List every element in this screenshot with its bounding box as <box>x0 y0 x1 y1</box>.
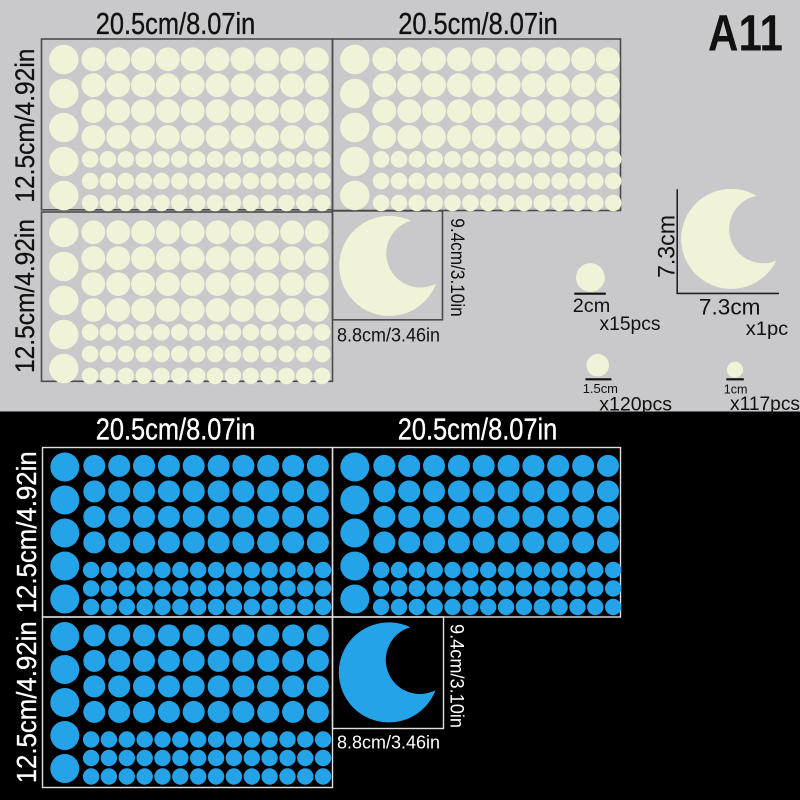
svg-text:20.5cm/8.07in: 20.5cm/8.07in <box>96 412 256 446</box>
svg-text:8.8cm/3.46in: 8.8cm/3.46in <box>337 732 440 753</box>
svg-text:7.3cm: 7.3cm <box>654 215 681 278</box>
svg-text:x120pcs: x120pcs <box>599 394 672 416</box>
svg-text:12.5cm/4.92in: 12.5cm/4.92in <box>11 621 42 783</box>
svg-text:9.4cm/3.10in: 9.4cm/3.10in <box>446 218 467 317</box>
svg-text:20.5cm/8.07in: 20.5cm/8.07in <box>398 412 558 446</box>
svg-text:x1pc: x1pc <box>746 318 789 340</box>
svg-text:12.5cm/4.92in: 12.5cm/4.92in <box>11 451 42 613</box>
svg-text:12.5cm/4.92in: 12.5cm/4.92in <box>10 49 40 203</box>
svg-text:7.3cm: 7.3cm <box>699 295 761 320</box>
svg-text:A11: A11 <box>708 5 783 62</box>
svg-text:x117pcs: x117pcs <box>730 393 800 415</box>
svg-text:20.5cm/8.07in: 20.5cm/8.07in <box>398 7 558 41</box>
svg-text:9.4cm/3.10in: 9.4cm/3.10in <box>446 624 467 728</box>
svg-text:20.5cm/8.07in: 20.5cm/8.07in <box>96 7 256 41</box>
svg-text:8.8cm/3.46in: 8.8cm/3.46in <box>337 326 440 347</box>
svg-text:12.5cm/4.92in: 12.5cm/4.92in <box>10 219 40 373</box>
svg-text:x15pcs: x15pcs <box>600 313 661 335</box>
